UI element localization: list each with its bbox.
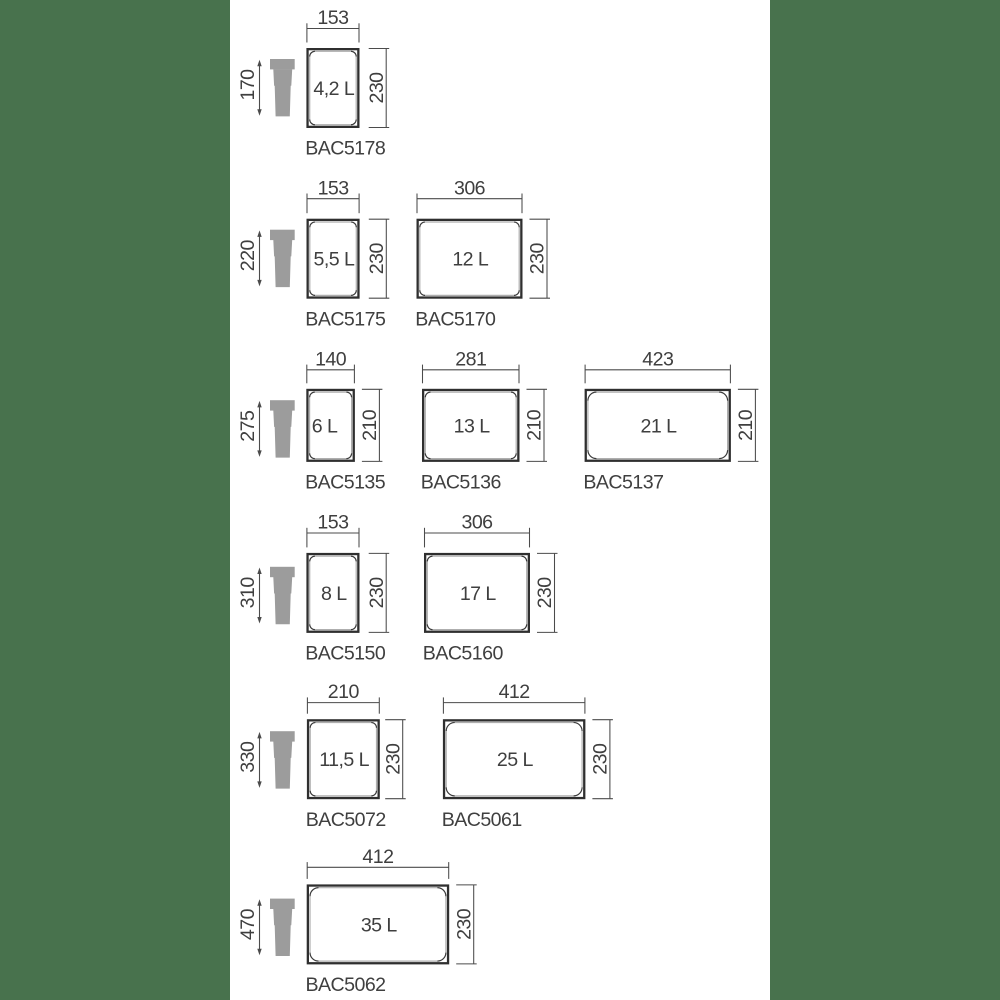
- svg-text:BAC5072: BAC5072: [306, 809, 386, 831]
- svg-text:153: 153: [317, 7, 349, 29]
- svg-text:210: 210: [359, 409, 381, 441]
- svg-text:6 L: 6 L: [312, 415, 338, 437]
- svg-text:35 L: 35 L: [361, 914, 398, 936]
- svg-text:8 L: 8 L: [321, 583, 347, 605]
- svg-text:210: 210: [524, 409, 546, 441]
- svg-text:412: 412: [362, 846, 393, 868]
- svg-text:4,2 L: 4,2 L: [313, 78, 354, 100]
- svg-text:BAC5137: BAC5137: [583, 472, 663, 494]
- svg-text:470: 470: [237, 908, 259, 940]
- svg-text:230: 230: [534, 577, 556, 609]
- svg-text:210: 210: [328, 681, 360, 703]
- svg-text:21 L: 21 L: [641, 415, 678, 437]
- svg-text:BAC5136: BAC5136: [421, 472, 502, 494]
- svg-text:230: 230: [366, 72, 388, 104]
- svg-text:BAC5061: BAC5061: [442, 809, 522, 831]
- svg-text:12 L: 12 L: [452, 249, 489, 271]
- svg-text:BAC5160: BAC5160: [423, 643, 504, 665]
- svg-text:275: 275: [237, 410, 259, 442]
- svg-text:330: 330: [237, 741, 259, 773]
- svg-text:BAC5175: BAC5175: [305, 308, 386, 330]
- svg-text:170: 170: [237, 69, 259, 101]
- svg-text:230: 230: [366, 243, 388, 275]
- svg-text:230: 230: [590, 743, 612, 775]
- svg-text:210: 210: [735, 409, 757, 441]
- svg-text:281: 281: [455, 348, 486, 370]
- svg-text:423: 423: [642, 348, 674, 370]
- svg-text:230: 230: [527, 243, 549, 275]
- svg-text:BAC5150: BAC5150: [305, 643, 386, 665]
- svg-text:412: 412: [499, 681, 530, 703]
- svg-text:5,5 L: 5,5 L: [313, 249, 354, 271]
- svg-text:BAC5135: BAC5135: [305, 472, 386, 494]
- svg-text:153: 153: [317, 512, 349, 534]
- svg-text:17 L: 17 L: [460, 583, 497, 605]
- svg-text:BAC5170: BAC5170: [415, 308, 496, 330]
- svg-text:220: 220: [237, 240, 259, 272]
- svg-text:BAC5062: BAC5062: [306, 974, 386, 996]
- svg-text:306: 306: [461, 512, 493, 534]
- svg-text:230: 230: [382, 743, 404, 775]
- svg-text:310: 310: [237, 577, 259, 609]
- svg-text:153: 153: [318, 177, 350, 199]
- svg-text:140: 140: [315, 348, 347, 370]
- svg-text:230: 230: [366, 577, 388, 609]
- svg-text:BAC5178: BAC5178: [305, 138, 386, 160]
- svg-text:11,5 L: 11,5 L: [319, 749, 369, 771]
- svg-text:306: 306: [454, 177, 486, 199]
- svg-text:13 L: 13 L: [454, 415, 491, 437]
- svg-text:230: 230: [453, 908, 475, 940]
- svg-text:25 L: 25 L: [497, 749, 534, 771]
